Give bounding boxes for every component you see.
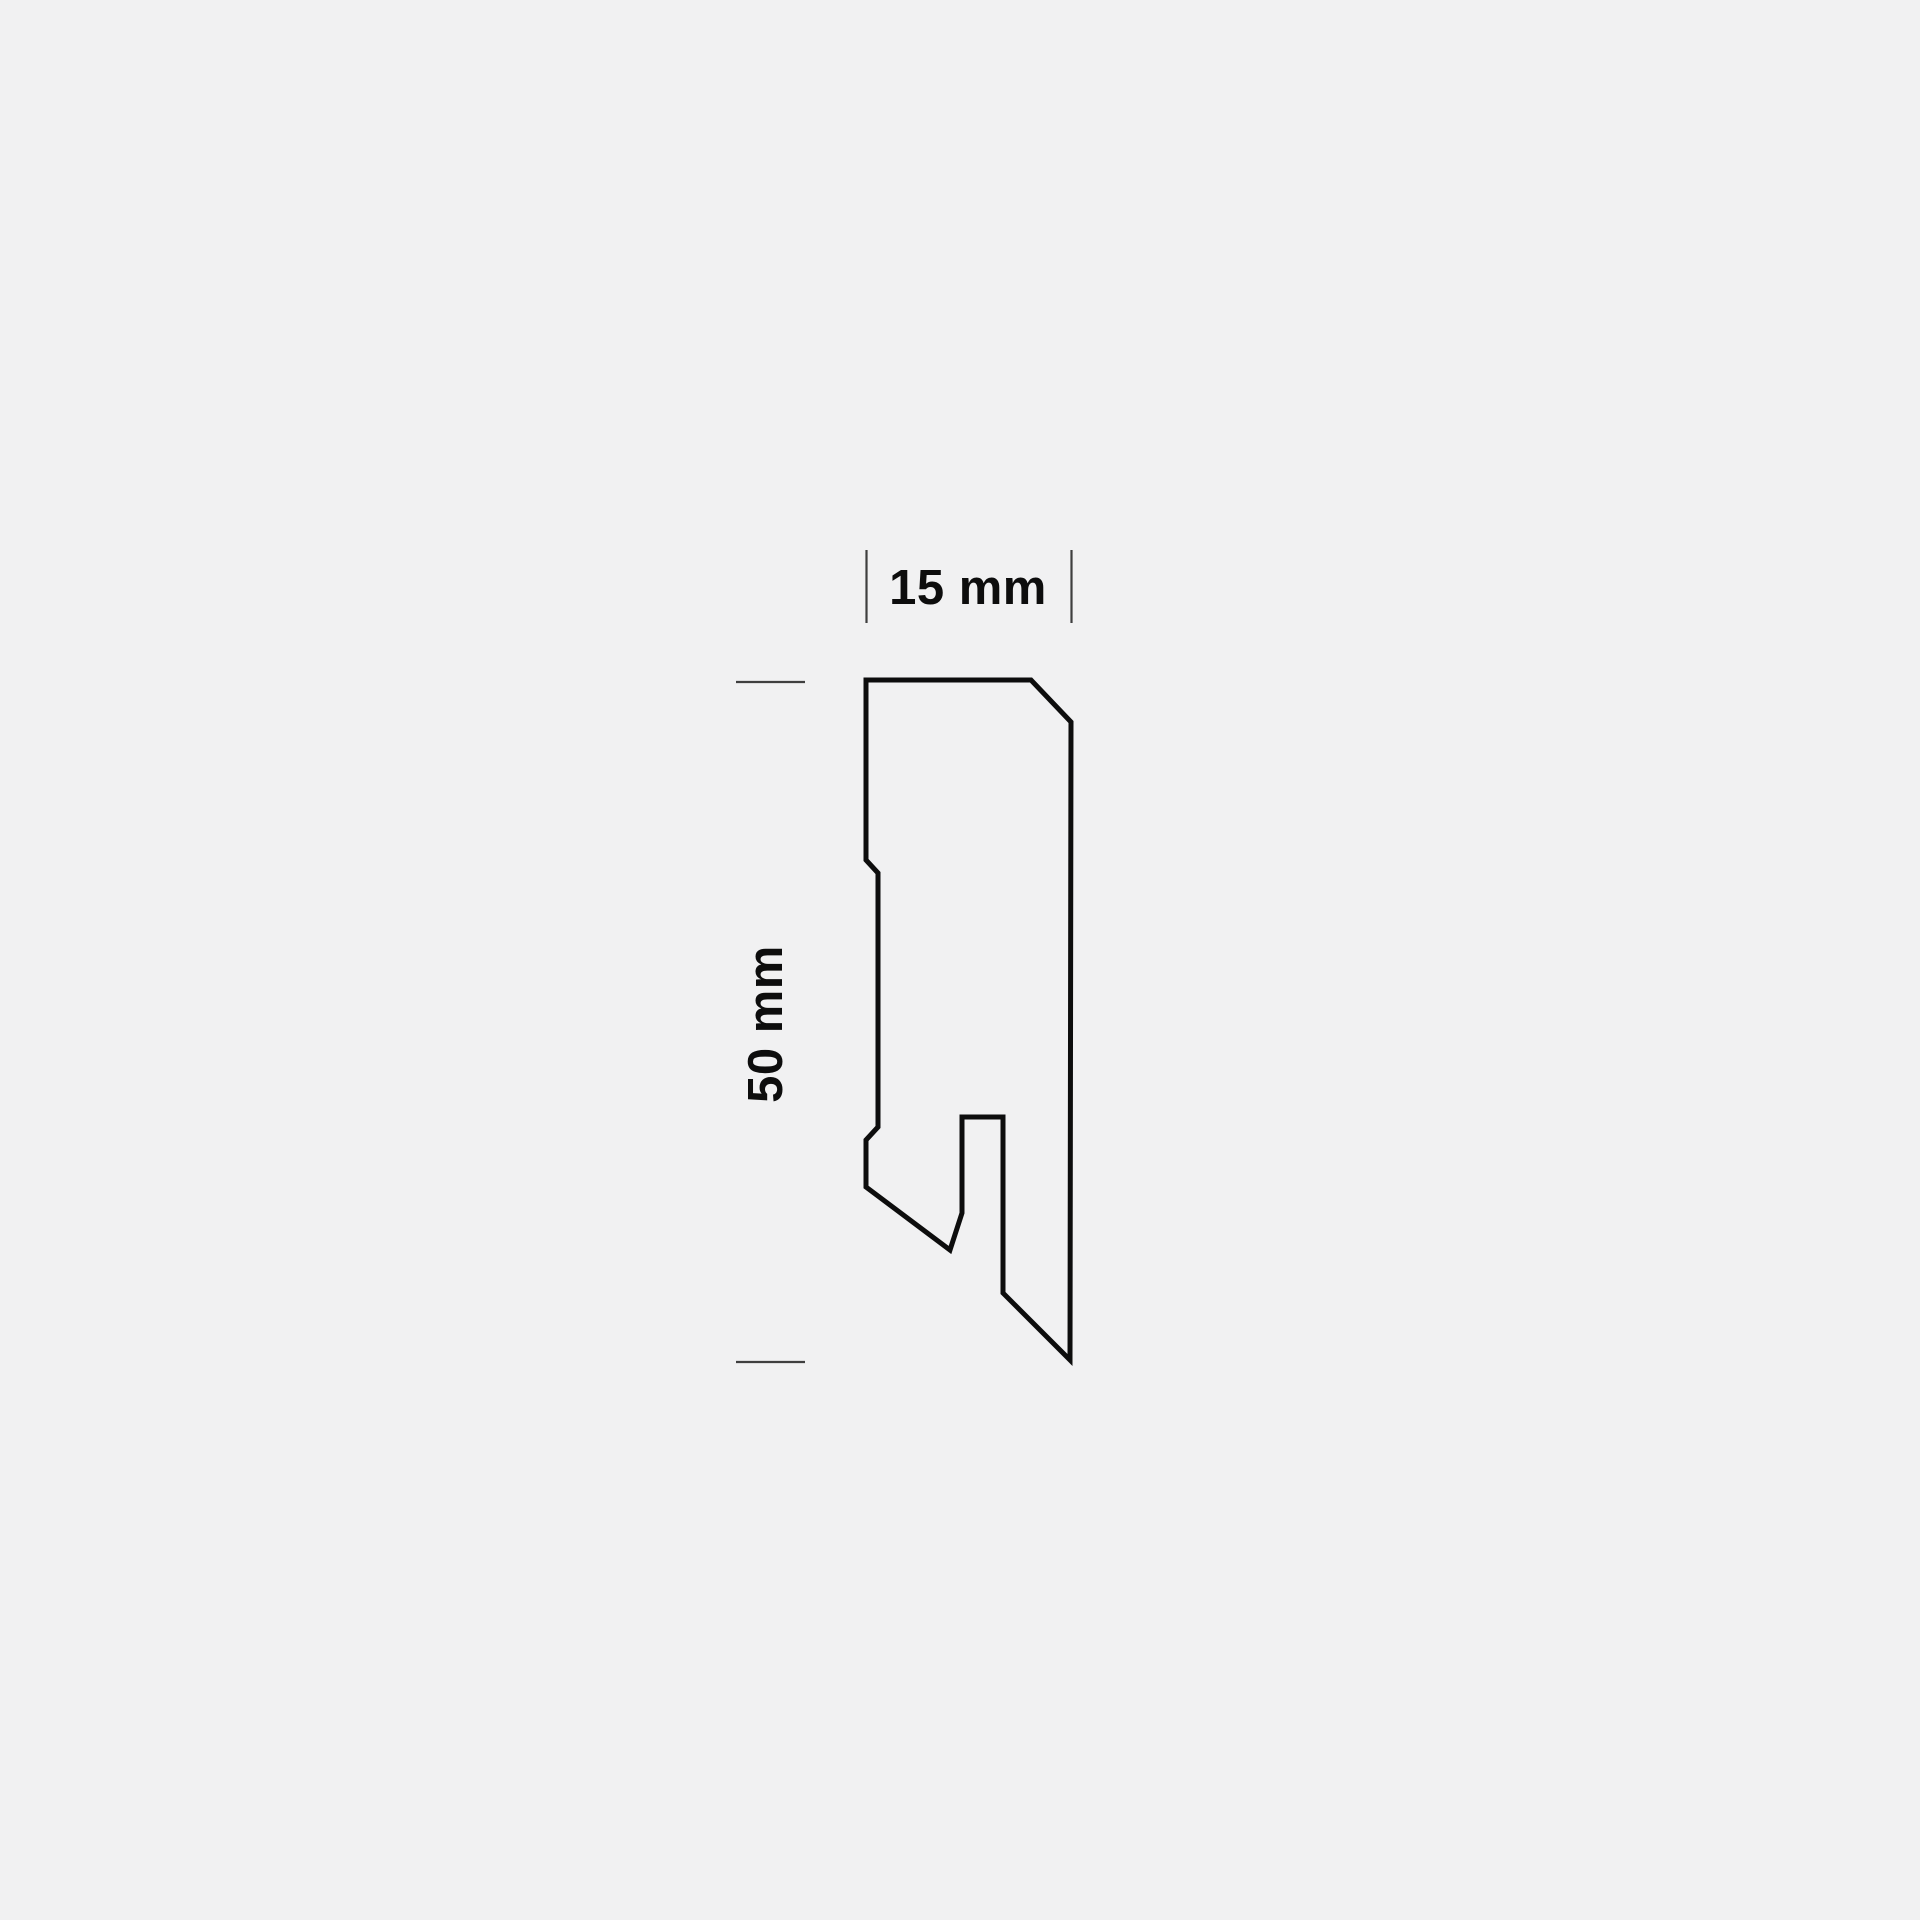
profile-diagram: 15 mm 50 mm bbox=[0, 0, 1920, 1920]
height-dim-label: 50 mm bbox=[739, 945, 793, 1103]
diagram-canvas: 15 mm 50 mm bbox=[0, 0, 1920, 1920]
skirting-profile-outline bbox=[866, 680, 1071, 1360]
width-dim-label: 15 mm bbox=[889, 561, 1047, 615]
